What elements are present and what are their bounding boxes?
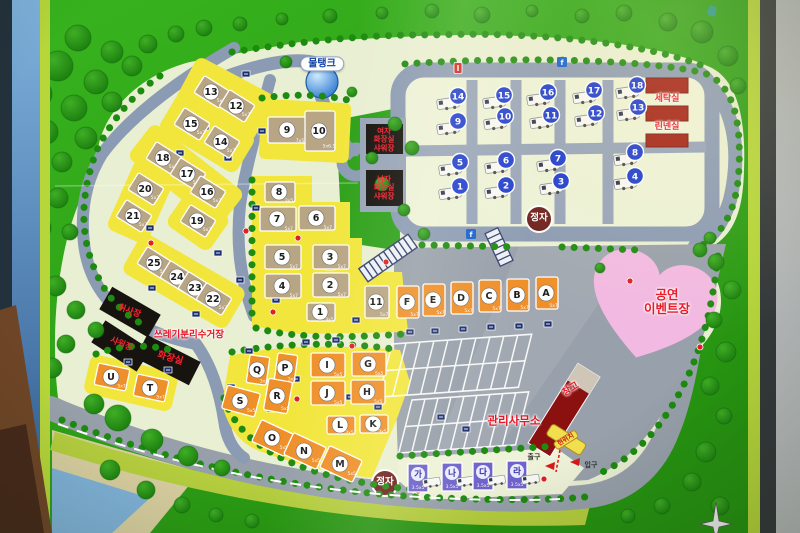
svg-text:H: H [363,387,371,398]
sign-post-icon [454,63,462,74]
svg-text:10: 10 [499,112,512,122]
svg-text:7: 7 [555,154,561,164]
svg-text:3x5: 3x5 [260,379,269,385]
svg-text:2: 2 [503,181,509,191]
power-box-icon [245,348,253,354]
svg-text:5x7: 5x7 [436,310,445,316]
svg-text:5x5: 5x5 [348,471,357,477]
svg-text:E: E [430,295,437,306]
site-7: 75x7 [260,207,296,232]
svg-text:P: P [282,363,289,374]
svg-text:3.5x5: 3.5x5 [511,482,524,488]
svg-text:16: 16 [542,88,555,98]
site-H: H5x5 [351,380,385,405]
svg-text:5x7: 5x7 [151,195,160,201]
site-K: K3x5 [360,415,388,435]
svg-text:5x7: 5x7 [549,303,558,309]
svg-text:22: 22 [206,294,219,305]
svg-text:5x7: 5x7 [324,225,333,231]
svg-text:5x7: 5x7 [242,112,251,118]
svg-text:C: C [486,291,493,302]
site-Q: Q3x5 [246,355,270,386]
svg-text:D: D [457,293,465,304]
power-box-icon [459,326,467,332]
svg-text:19: 19 [190,216,203,227]
svg-text:5x5: 5x5 [281,406,290,412]
hydrant-dot-icon [270,309,276,315]
pavilion-upper [526,206,552,232]
svg-text:18: 18 [156,153,170,164]
svg-text:6: 6 [503,156,509,166]
svg-text:9: 9 [284,125,291,136]
svg-text:5x7: 5x7 [338,292,347,298]
svg-text:14: 14 [452,92,465,102]
svg-text:R: R [273,391,281,402]
svg-text:2: 2 [327,280,334,291]
svg-text:13: 13 [204,87,217,98]
svg-text:3.5x5: 3.5x5 [446,484,459,490]
site-I: I5x5 [311,353,345,378]
site-B: B5x7 [507,279,529,311]
svg-text:3x5: 3x5 [345,430,354,436]
svg-text:5x7: 5x7 [203,227,212,233]
site-6: 65x7 [299,206,335,231]
site-2: 25x7 [313,273,349,298]
svg-text:라: 라 [513,466,521,477]
power-box-icon [192,311,200,317]
svg-text:I: I [325,360,329,371]
laundry-buildings [646,78,688,147]
site-5: 55x7 [265,245,301,270]
svg-text:다: 다 [479,467,487,478]
svg-text:M: M [335,459,344,470]
svg-text:8: 8 [632,148,638,158]
svg-text:1: 1 [457,182,463,192]
power-box-icon [124,359,132,365]
svg-text:U: U [107,372,115,383]
svg-text:5x7: 5x7 [117,383,126,389]
svg-text:5x7: 5x7 [139,222,148,228]
campground-map-sign-photo: ff 135x7125x7155x7145x7185x7175x7165x720… [0,0,800,533]
water-point-icon: f [557,57,567,67]
power-box-icon [487,324,495,330]
site-J: J5x5 [311,381,345,406]
svg-text:5x7: 5x7 [156,394,165,400]
svg-text:3.5x5: 3.5x5 [477,483,490,489]
svg-text:5x5: 5x5 [247,408,256,414]
power-box-icon [148,285,156,291]
power-box-icon [515,323,523,329]
hydrant-dot-icon [541,476,547,482]
svg-text:Q: Q [253,365,261,376]
svg-text:3x5: 3x5 [378,429,387,435]
power-box-icon [462,426,470,432]
site-R: R5x5 [263,378,292,414]
svg-text:가: 가 [414,469,422,480]
svg-text:7x5: 7x5 [296,138,305,144]
svg-text:A: A [542,288,550,299]
hydrant-dot-icon [383,259,389,265]
power-box-icon [242,71,250,77]
hydrant-dot-icon [148,240,154,246]
power-box-icon [437,414,445,420]
site-D: D5x7 [451,282,473,314]
svg-text:4: 4 [632,172,638,182]
site-C: C5x7 [479,280,501,312]
svg-text:14: 14 [214,137,228,148]
site-1: 13x5 [307,303,335,323]
svg-text:15: 15 [498,91,511,101]
svg-text:7: 7 [274,214,281,225]
svg-text:25: 25 [147,258,160,269]
svg-text:3.5x5: 3.5x5 [412,485,425,491]
svg-text:17: 17 [180,169,193,180]
svg-text:8: 8 [276,187,283,198]
svg-text:5x6.5: 5x6.5 [323,144,336,150]
power-box-icon [302,339,310,345]
svg-text:5x7: 5x7 [492,306,501,312]
svg-text:11: 11 [545,111,558,121]
svg-text:5x7: 5x7 [227,148,236,154]
water-point-icon: f [466,229,476,239]
svg-text:5x7: 5x7 [197,130,206,136]
svg-text:5x7: 5x7 [290,264,299,270]
svg-text:3: 3 [327,252,334,263]
svg-text:5x5: 5x5 [334,372,343,378]
power-box-icon [164,367,172,373]
svg-text:21: 21 [126,211,139,222]
svg-text:5: 5 [279,252,286,263]
svg-text:13: 13 [632,103,645,113]
svg-text:O: O [268,433,276,444]
site-L: L3x5 [327,416,355,436]
svg-text:3x5: 3x5 [325,317,334,323]
site-E: E5x7 [423,284,445,316]
svg-text:4: 4 [279,281,286,292]
svg-text:T: T [147,383,154,394]
svg-text:15: 15 [184,119,197,130]
hydrant-dot-icon [243,228,249,234]
svg-text:3x5: 3x5 [285,198,294,204]
hydrant-dot-icon [697,344,703,350]
power-box-icon [431,328,439,334]
svg-text:J: J [324,388,329,399]
svg-text:N: N [300,446,308,457]
svg-text:5x5: 5x5 [312,458,321,464]
svg-text:16: 16 [200,187,214,198]
power-box-icon [214,250,222,256]
hydrant-dot-icon [627,278,633,284]
svg-text:3: 3 [558,177,564,187]
svg-text:5x5: 5x5 [375,371,384,377]
site-8: 83x5 [265,182,295,204]
svg-text:5x5: 5x5 [374,399,383,405]
svg-text:G: G [364,359,372,370]
svg-text:5x7: 5x7 [219,305,228,311]
power-box-icon [406,329,414,335]
site-P: P3x5 [274,353,298,384]
site-F: F5x7 [397,286,419,318]
power-box-icon [252,205,260,211]
svg-text:1: 1 [317,307,324,318]
svg-text:나: 나 [448,468,456,479]
svg-text:5x7: 5x7 [410,312,419,318]
power-box-icon [352,317,360,323]
svg-text:6: 6 [313,213,320,224]
svg-text:10: 10 [312,126,326,137]
svg-text:12: 12 [590,109,603,119]
site-G: G5x5 [352,352,386,377]
svg-text:17: 17 [588,86,601,96]
svg-text:S: S [237,396,244,407]
power-box-icon [258,128,266,134]
site-3: 35x7 [313,245,349,270]
svg-text:5x7: 5x7 [338,264,347,270]
hydrant-dot-icon [349,343,355,349]
svg-text:5x7: 5x7 [290,293,299,299]
svg-text:5: 5 [457,158,463,168]
svg-text:18: 18 [631,81,644,91]
svg-text:20: 20 [138,184,152,195]
svg-text:5x7: 5x7 [213,198,222,204]
svg-text:K: K [369,419,377,430]
svg-text:12: 12 [229,101,242,112]
power-box-icon [236,277,244,283]
site-A: A5x7 [536,277,558,309]
site-10: 105x6.5 [305,111,335,151]
site-9: 97x5 [268,117,308,144]
svg-text:B: B [513,290,520,301]
hydrant-dot-icon [294,396,300,402]
svg-text:5x7: 5x7 [380,312,389,318]
svg-text:L: L [337,420,343,431]
power-box-icon [544,321,552,327]
power-box-icon [332,337,340,343]
svg-text:5x7: 5x7 [520,305,529,311]
map-canvas: ff 135x7125x7155x7145x7185x7175x7165x720… [0,0,800,533]
svg-text:F: F [404,297,411,308]
svg-text:9: 9 [455,117,461,127]
site-4: 45x7 [265,274,301,299]
site-11: 115x7 [365,286,389,318]
svg-text:5x7: 5x7 [464,308,473,314]
svg-text:5x7: 5x7 [285,226,294,232]
hydrant-dot-icon [295,235,301,241]
svg-text:11: 11 [369,297,382,308]
svg-text:5x5: 5x5 [334,400,343,406]
